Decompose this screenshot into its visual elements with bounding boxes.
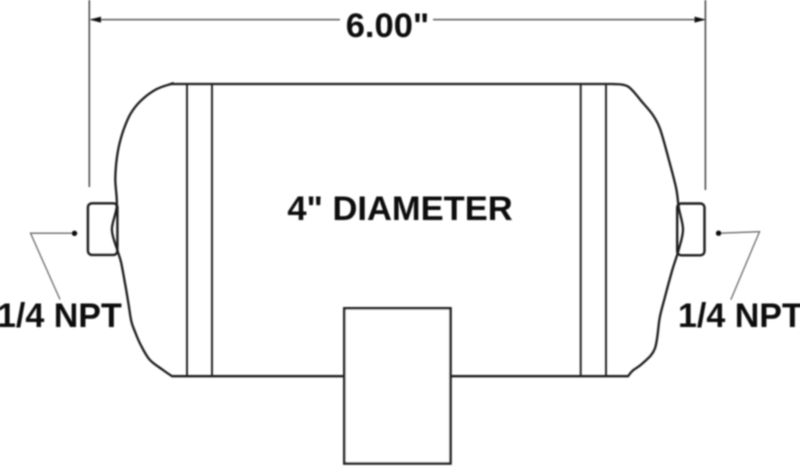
svg-text:6.00": 6.00" — [346, 7, 430, 45]
svg-text:4" DIAMETER: 4" DIAMETER — [287, 190, 512, 228]
svg-text:1/4 NPT: 1/4 NPT — [678, 297, 800, 335]
svg-text:1/4 NPT: 1/4 NPT — [0, 297, 122, 335]
